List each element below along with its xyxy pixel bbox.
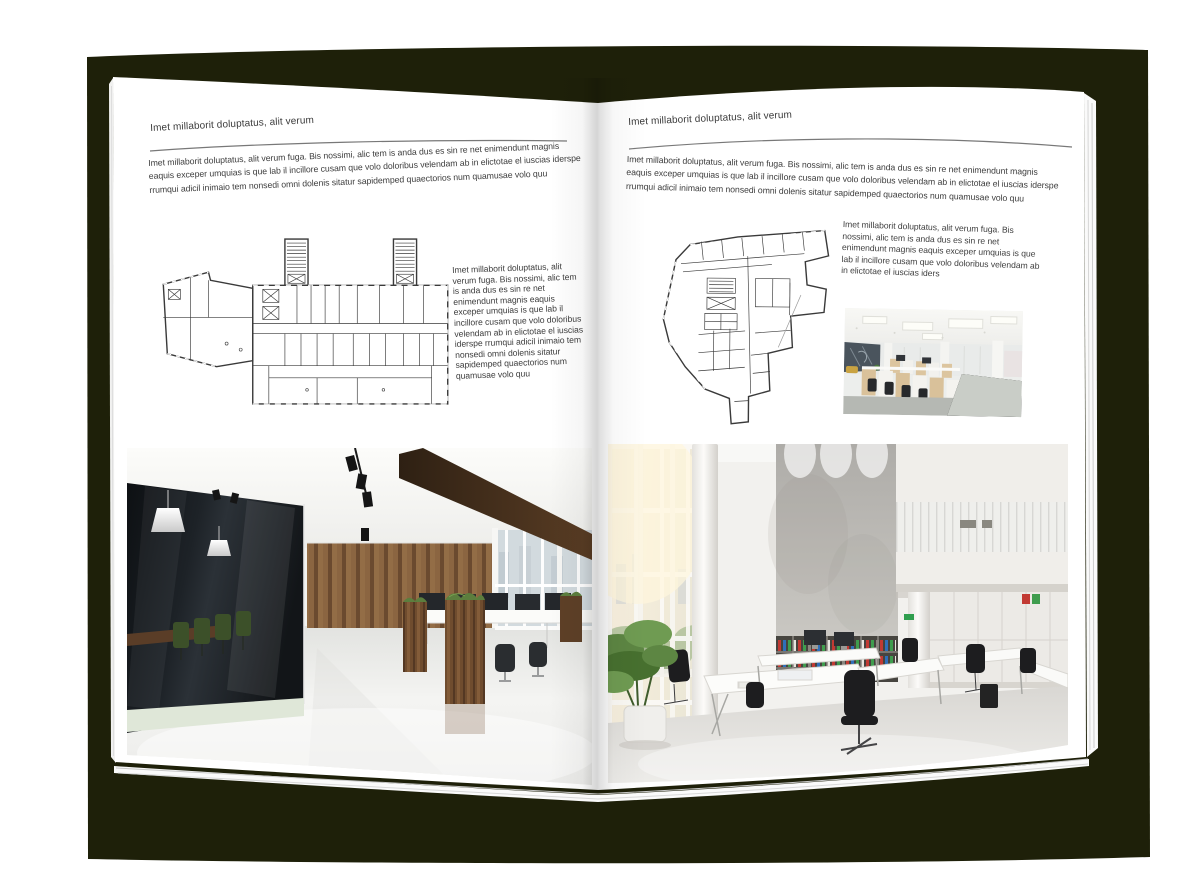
plan-columns [225, 342, 385, 391]
ceiling-panels [844, 308, 1023, 345]
safety-sign-green [1032, 594, 1040, 604]
safety-sign-red [1022, 594, 1030, 604]
plan-interior-walls [163, 243, 447, 404]
mezzanine [896, 444, 1068, 598]
photo-small-cubicle-office [843, 308, 1023, 417]
exit-sign [904, 614, 914, 620]
photo-right-atrium-office [608, 444, 1068, 786]
brochure-mockup: Imet millaborit doluptatus, alit verum I… [0, 0, 1200, 891]
floor-plan-right [649, 221, 835, 427]
floor-plan-left [156, 227, 450, 424]
glass-meeting-room [127, 483, 304, 733]
photo-left-office-interior [127, 448, 592, 788]
waste-bin [980, 684, 998, 708]
concrete-wall [768, 444, 898, 636]
plan-window-gaps [163, 272, 447, 404]
left-page-side-caption: Imet millaborit doluptatus, alit verum f… [452, 260, 587, 381]
right-page-side-caption: Imet millaborit doluptatus, alit verum f… [841, 219, 1044, 284]
plan-interior-walls [680, 231, 805, 402]
plan-outer-walls [163, 239, 447, 404]
